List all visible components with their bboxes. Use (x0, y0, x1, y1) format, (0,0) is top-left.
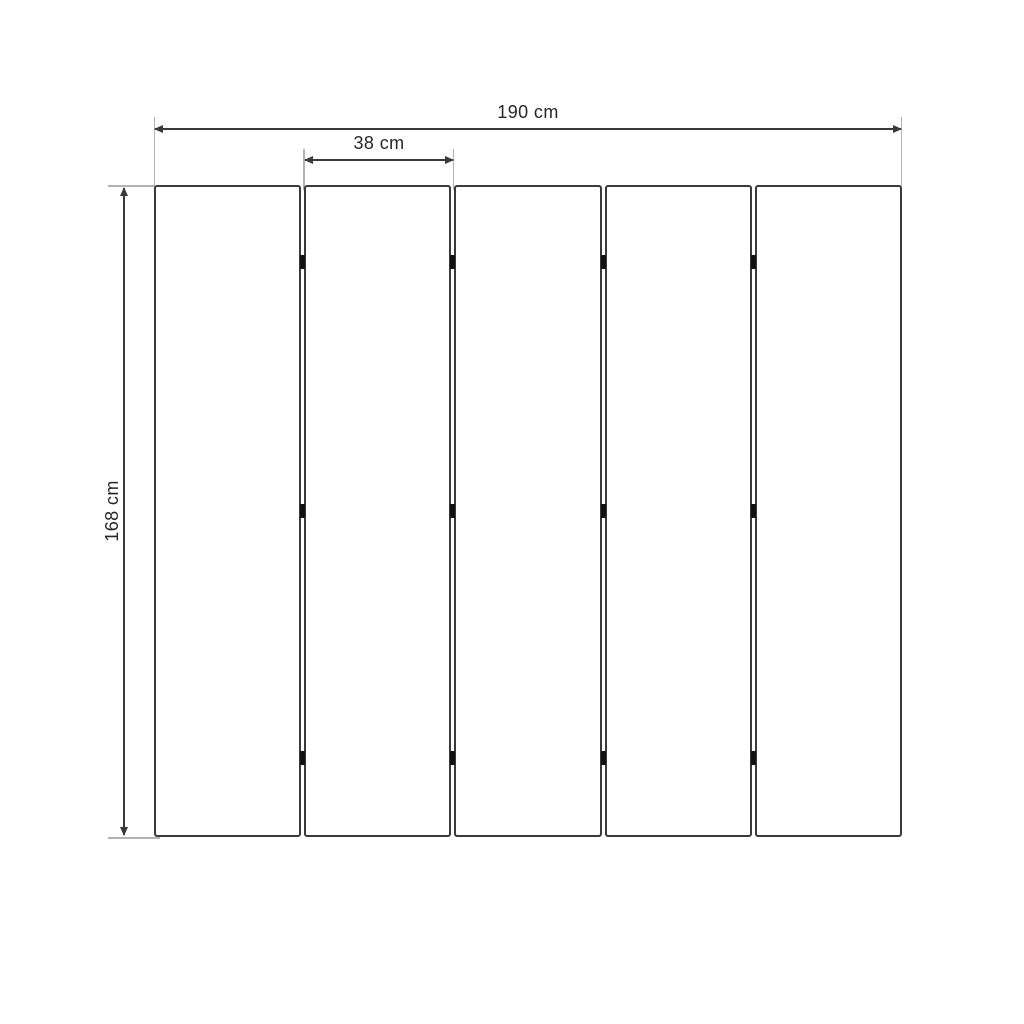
panel-5 (755, 185, 902, 837)
hinge-mark-gap2-2 (450, 504, 455, 518)
arrowhead-left-icon (154, 125, 163, 133)
hinge-mark-gap1-3 (300, 751, 305, 765)
hinge-mark-gap3-3 (601, 751, 606, 765)
hinge-mark-gap4-3 (751, 751, 756, 765)
hinge-mark-gap3-2 (601, 504, 606, 518)
total-width-label: 190 cm (458, 102, 598, 122)
arrowhead-right-icon (893, 125, 902, 133)
height-dimension-line (123, 188, 125, 835)
extension-line-height-bottom (108, 837, 160, 839)
arrowhead-up-icon (120, 187, 128, 196)
arrowhead-right-icon (445, 156, 454, 164)
arrowhead-left-icon (304, 156, 313, 164)
panel-row (154, 185, 902, 837)
panel-width-label: 38 cm (309, 133, 449, 153)
total-width-dimension-line (155, 128, 901, 130)
hinge-mark-gap4-2 (751, 504, 756, 518)
panel-2 (304, 185, 451, 837)
arrowhead-down-icon (120, 827, 128, 836)
panel-4 (605, 185, 752, 837)
hinge-mark-gap3-1 (601, 255, 606, 269)
panel-width-dimension-line (305, 159, 453, 161)
panel-1 (154, 185, 301, 837)
panel-3 (454, 185, 601, 837)
hinge-mark-gap2-3 (450, 751, 455, 765)
extension-line-height-top (108, 185, 155, 187)
hinge-mark-gap1-2 (300, 504, 305, 518)
dimension-diagram: 190 cm 38 cm 168 cm (0, 0, 1024, 1024)
height-label: 168 cm (102, 441, 122, 581)
hinge-mark-gap1-1 (300, 255, 305, 269)
hinge-mark-gap4-1 (751, 255, 756, 269)
hinge-mark-gap2-1 (450, 255, 455, 269)
